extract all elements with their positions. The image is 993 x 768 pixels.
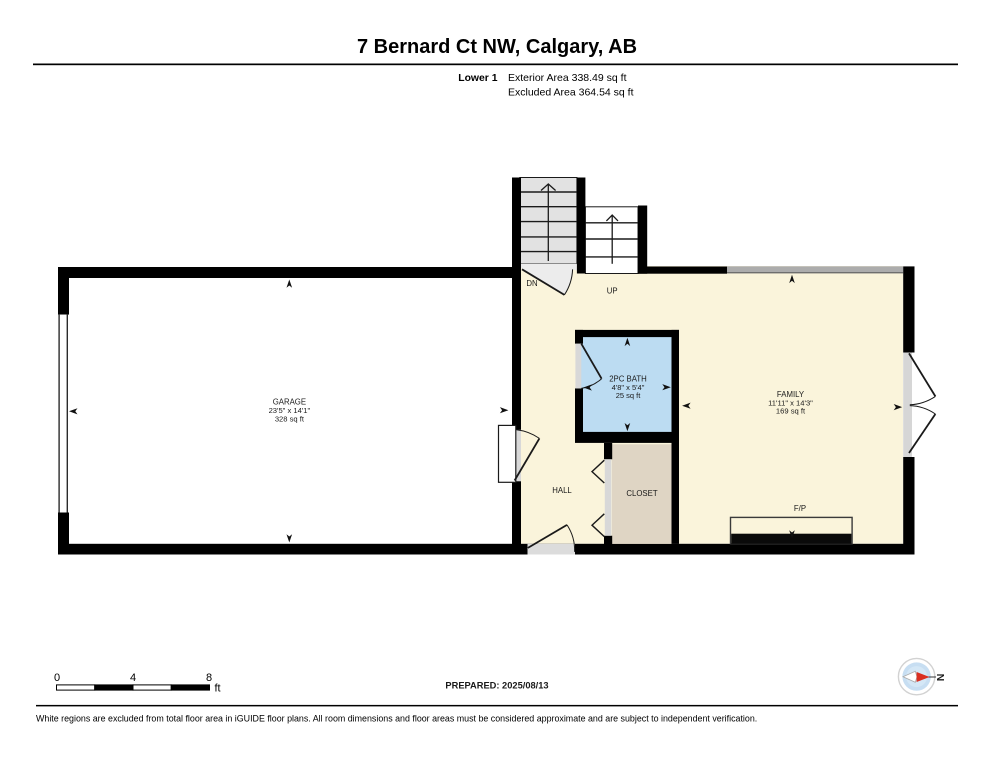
svg-text:ft: ft <box>215 683 221 695</box>
svg-text:8: 8 <box>206 672 212 684</box>
svg-text:7 Bernard Ct NW, Calgary, AB: 7 Bernard Ct NW, Calgary, AB <box>357 36 637 58</box>
svg-text:UP: UP <box>607 287 618 296</box>
svg-text:White regions are excluded fro: White regions are excluded from total fl… <box>36 714 757 724</box>
svg-text:Exterior Area 338.49 sq ft: Exterior Area 338.49 sq ft <box>508 72 627 84</box>
svg-text:Excluded Area 364.54 sq ft: Excluded Area 364.54 sq ft <box>508 87 634 99</box>
svg-text:Lower 1: Lower 1 <box>458 73 497 84</box>
svg-text:HALL: HALL <box>552 486 572 495</box>
svg-text:DN: DN <box>526 279 537 288</box>
svg-text:169 sq ft: 169 sq ft <box>776 407 806 416</box>
svg-text:F/P: F/P <box>794 504 806 513</box>
svg-text:25 sq ft: 25 sq ft <box>616 391 642 400</box>
svg-text:4: 4 <box>130 672 136 684</box>
svg-text:0: 0 <box>54 672 60 684</box>
svg-text:CLOSET: CLOSET <box>626 489 657 498</box>
svg-text:328 sq ft: 328 sq ft <box>275 414 305 423</box>
svg-text:N: N <box>934 674 946 682</box>
svg-text:PREPARED: 2025/08/13: PREPARED: 2025/08/13 <box>445 681 548 691</box>
